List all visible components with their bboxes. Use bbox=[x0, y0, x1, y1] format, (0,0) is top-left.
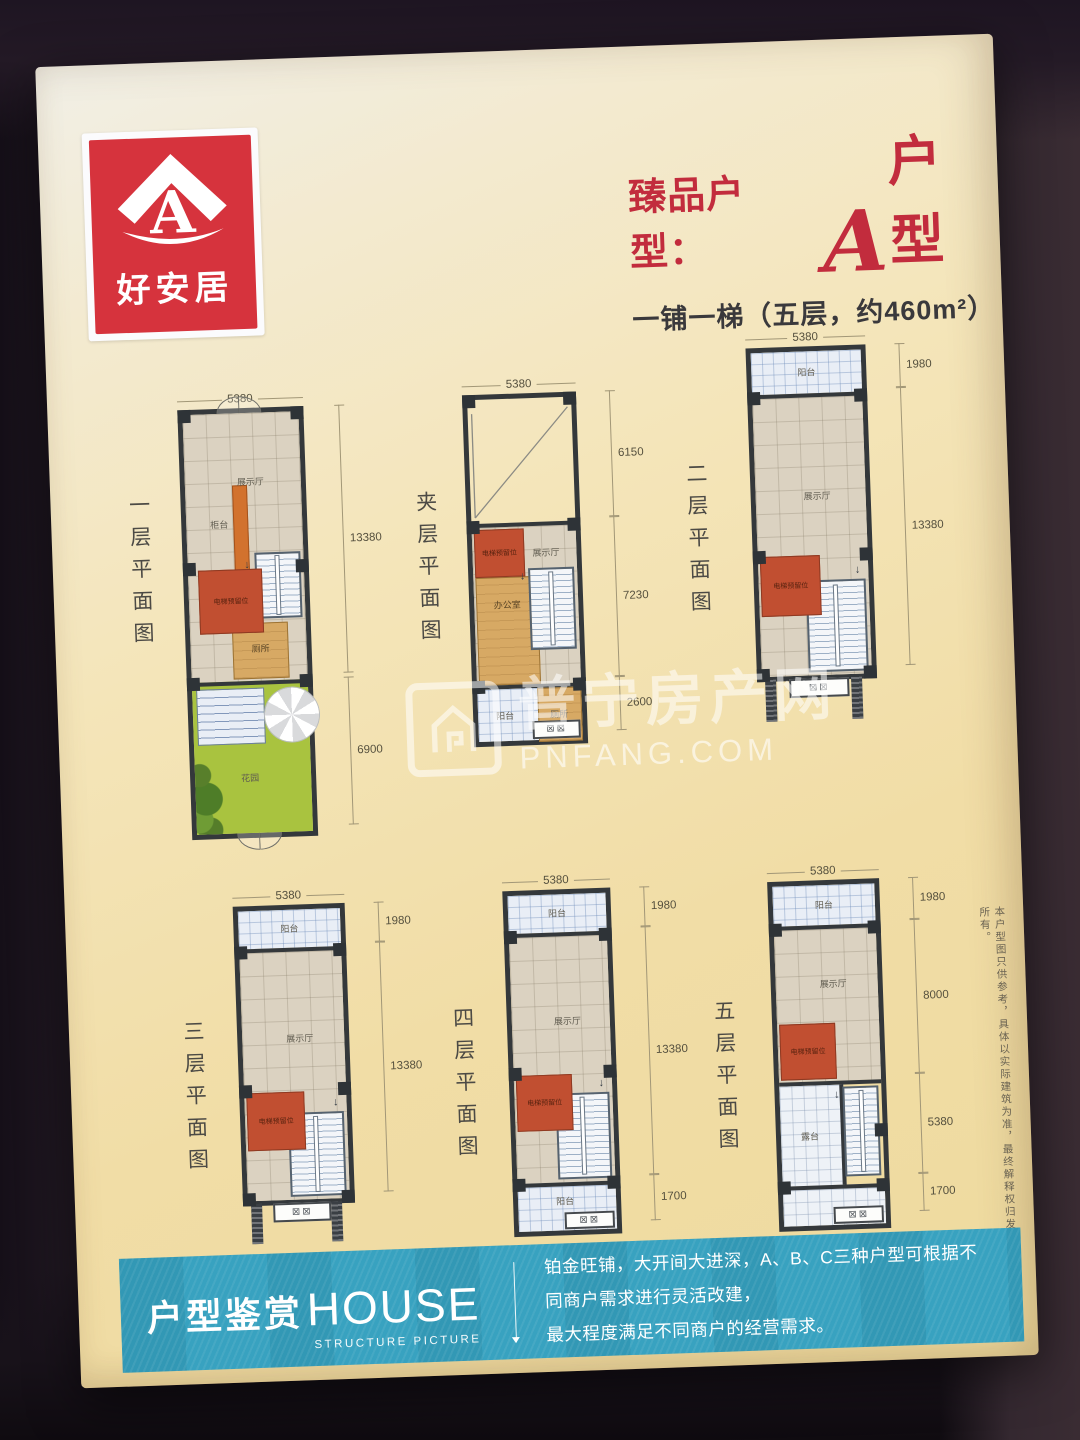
room-label-elevator: 电梯预留位 bbox=[213, 596, 248, 607]
dimension-value: 5380 bbox=[792, 331, 818, 344]
room-label-balcony: 阳台 bbox=[548, 906, 566, 920]
room-label-hall: 展示厅 bbox=[554, 1014, 581, 1028]
dimension-value: 13380 bbox=[656, 1043, 688, 1056]
floor-plan-level-3: 三层平面图 5380 阳台 展示厅 电梯预留位 ↓ ⊠⊠ 1980 13380 bbox=[232, 885, 355, 1207]
window-icon: ⊠⊠ bbox=[273, 1201, 332, 1222]
page-header: 臻品户型： A 户型 一铺一梯（五层，约460m²） bbox=[626, 114, 1003, 338]
svg-text:A: A bbox=[148, 177, 197, 248]
brand-name: 好安居 bbox=[116, 259, 235, 312]
hall-section: 展示厅 电梯预留位 bbox=[774, 923, 881, 1082]
floor-plan-level-2: 二层平面图 5380 阳台 展示厅 电梯预留位 ↓ ⊠⊠ 1980 13380 bbox=[745, 326, 877, 682]
title-letter: A bbox=[822, 204, 890, 278]
dimension-value: 1700 bbox=[661, 1190, 687, 1203]
dimension-side: 1700 bbox=[922, 1173, 924, 1211]
dimension-value: 5380 bbox=[927, 1116, 953, 1129]
plan-body: 阳台 展示厅 电梯预留位 ↓ bbox=[233, 903, 355, 1207]
dimension-value: 7230 bbox=[623, 589, 649, 602]
house-a-logo-icon: A bbox=[106, 149, 238, 257]
dimension-side: 2600 bbox=[619, 676, 622, 730]
dimension-side: 5380 bbox=[919, 1073, 923, 1173]
brochure-page: A 好安居 臻品户型： A 户型 一铺一梯（五层，约460m²） 一层平面图 5… bbox=[35, 34, 1039, 1389]
window-icon: ⊠⊠ bbox=[565, 1211, 616, 1230]
stair-arrow-icon: ↓ bbox=[244, 559, 250, 571]
room-label-toilet: 厕所 bbox=[550, 707, 568, 721]
dimension-side: 13380 bbox=[379, 942, 389, 1192]
terrace-section: 露台 ↓ bbox=[779, 1079, 885, 1186]
title-suffix: 户型 bbox=[886, 114, 1001, 276]
stair-arrow-icon: ↓ bbox=[333, 1096, 339, 1108]
room-label-elevator: 电梯预留位 bbox=[527, 1097, 562, 1108]
dimension-value: 2600 bbox=[627, 696, 653, 709]
umbrella-icon bbox=[264, 687, 320, 743]
column-leg bbox=[765, 680, 777, 722]
room-label-garden: 花园 bbox=[241, 771, 259, 785]
plan-title: 一层平面图 bbox=[122, 493, 158, 654]
room-label-elevator: 电梯预留位 bbox=[773, 580, 808, 591]
title-prefix: 臻品户型： bbox=[627, 160, 822, 285]
disclaimer-vertical-text: 本户型图只供参考，具体以实际建筑为准，最终解释权归发展商所有。 bbox=[977, 906, 1019, 1263]
elevator-reserved-block: 电梯预留位 bbox=[516, 1074, 574, 1132]
room-label-elevator: 电梯预留位 bbox=[482, 548, 517, 559]
banner-title-zh: 户型鉴赏 bbox=[146, 1285, 304, 1342]
hall-section: 展示厅 电梯预留位 ↓ bbox=[239, 946, 350, 1201]
void-section bbox=[467, 397, 575, 525]
door-swing-icon bbox=[216, 395, 262, 414]
dimension-side: 8000 bbox=[913, 919, 919, 1073]
dimension-value: 1980 bbox=[906, 358, 932, 371]
dimension-value: 5380 bbox=[506, 378, 532, 391]
plan-body: 阳台 展示厅 电梯预留位 露台 ↓ ⊠⊠ bbox=[767, 878, 891, 1232]
brand-logo-red-card: A 好安居 bbox=[89, 135, 258, 335]
banner-title: 户型鉴赏 HOUSE STRUCTURE PICTURE bbox=[146, 1276, 481, 1342]
banner-title-sub: STRUCTURE PICTURE bbox=[314, 1333, 481, 1351]
dimension-value: 6150 bbox=[618, 446, 644, 459]
plan-body: 阳台 展示厅 电梯预留位 ↓ bbox=[745, 344, 877, 682]
balcony-section: 阳台 bbox=[772, 883, 875, 927]
dimension-side: 1980 bbox=[643, 886, 645, 926]
room-label-counter: 柜台 bbox=[210, 518, 228, 532]
stair-arrow-icon: ↓ bbox=[520, 570, 526, 582]
plan-title: 四层平面图 bbox=[446, 1006, 482, 1167]
deck-block bbox=[196, 688, 266, 746]
column-leg bbox=[251, 1204, 263, 1244]
banner-description: 铂金旺铺，大开间大进深，A、B、C三种户型可根据不同商户需求进行灵活改建， 最大… bbox=[543, 1234, 998, 1352]
plan-body: 阳台 展示厅 电梯预留位 ↓ 阳台 ⊠⊠ bbox=[502, 888, 622, 1238]
column-leg bbox=[331, 1201, 343, 1241]
room-label-hall: 展示厅 bbox=[532, 545, 559, 559]
balcony-section: 阳台 bbox=[507, 893, 606, 934]
floor-plan-level-1: 一层平面图 5380 展示厅 柜台 电梯预留位 ↓ 厕所 花园 bbox=[177, 388, 319, 840]
bottom-banner: 户型鉴赏 HOUSE STRUCTURE PICTURE 铂金旺铺，大开间大进深… bbox=[119, 1227, 1024, 1372]
floor-plan-mezzanine: 夹层平面图 5380 电梯预留位 展示厅 办公室 ↓ 阳台 bbox=[461, 373, 588, 747]
page-title: 臻品户型： A 户型 bbox=[626, 114, 1001, 285]
dimension-value: 5380 bbox=[810, 865, 836, 878]
window-icon: ⊠⊠ bbox=[833, 1205, 884, 1224]
dimension-value: 1980 bbox=[385, 915, 411, 928]
dimension-side: 13380 bbox=[645, 926, 655, 1174]
dimension-side: 1980 bbox=[378, 902, 380, 942]
dimension-side: 6150 bbox=[609, 390, 614, 516]
room-label-balcony-bottom: 阳台 bbox=[556, 1194, 574, 1208]
balcony-bottom-section: 阳台 ⊠⊠ bbox=[517, 1181, 617, 1232]
elevator-reserved-block: 电梯预留位 bbox=[779, 1023, 837, 1081]
dimension-side: 1980 bbox=[898, 343, 901, 387]
dimension-value: 1700 bbox=[930, 1185, 956, 1198]
dimension-value: 1980 bbox=[920, 891, 946, 904]
room-label-elevator: 电梯预留位 bbox=[790, 1046, 825, 1057]
plan-body: 电梯预留位 展示厅 办公室 ↓ 阳台 厕所 ⊠⊠ bbox=[462, 391, 588, 747]
room-label-balcony: 阳台 bbox=[815, 898, 833, 912]
floor-plan-level-5: 五层平面图 5380 阳台 展示厅 电梯预留位 露台 ↓ ⊠⊠ 1 bbox=[766, 860, 891, 1232]
room-label-balcony: 阳台 bbox=[496, 709, 514, 723]
dimension-value: 13380 bbox=[912, 519, 944, 532]
door-swing-icon bbox=[237, 832, 283, 851]
dimension-side: 13380 bbox=[900, 387, 911, 665]
banner-divider bbox=[513, 1262, 517, 1342]
dimension-value: 6900 bbox=[357, 743, 383, 756]
dimension-value: 1980 bbox=[651, 899, 677, 912]
dimension-value: 5380 bbox=[275, 889, 301, 902]
dimension-side: 1980 bbox=[912, 877, 914, 919]
balcony-section: 阳台 bbox=[751, 349, 862, 395]
window-icon: ⊠⊠ bbox=[789, 677, 850, 698]
plan-title: 五层平面图 bbox=[707, 999, 743, 1160]
room-label-hall: 展示厅 bbox=[819, 976, 846, 990]
dimension-side: 7230 bbox=[613, 516, 620, 676]
stair-arrow-icon: ↓ bbox=[598, 1077, 604, 1089]
plan-title: 夹层平面图 bbox=[409, 490, 445, 651]
hall-section: 展示厅 电梯预留位 ↓ bbox=[752, 391, 872, 677]
dimension-side: 13380 bbox=[338, 405, 348, 673]
elevator-reserved-block: 电梯预留位 bbox=[474, 528, 526, 578]
column-leg bbox=[851, 677, 863, 719]
dimension-value: 8000 bbox=[923, 989, 949, 1002]
bottom-section: ⊠⊠ bbox=[783, 1183, 886, 1227]
room-label-hall: 展示厅 bbox=[237, 474, 264, 488]
mezzanine-section: 电梯预留位 展示厅 办公室 ↓ bbox=[471, 521, 581, 687]
window-icon: ⊠⊠ bbox=[532, 719, 581, 739]
room-label-terrace: 露台 bbox=[801, 1129, 819, 1143]
balcony-section: 阳台 bbox=[238, 908, 341, 950]
hall-section: 展示厅 柜台 电梯预留位 ↓ 厕所 bbox=[182, 411, 307, 683]
banner-title-en: HOUSE bbox=[306, 1276, 481, 1336]
dimension-value: 13380 bbox=[390, 1059, 422, 1072]
room-label-balcony: 阳台 bbox=[797, 365, 815, 379]
brand-logo: A 好安居 bbox=[82, 127, 265, 341]
balcony-toilet-section: 阳台 厕所 ⊠⊠ bbox=[477, 682, 583, 742]
room-label-balcony: 阳台 bbox=[280, 921, 298, 935]
plan-title: 三层平面图 bbox=[177, 1020, 213, 1181]
elevator-reserved-block: 电梯预留位 bbox=[246, 1091, 306, 1151]
stair-arrow-icon: ↓ bbox=[855, 564, 861, 576]
stairs bbox=[528, 567, 577, 651]
room-label-hall: 展示厅 bbox=[286, 1031, 313, 1045]
void-diagonal-line bbox=[467, 397, 575, 525]
dimension-side: 1700 bbox=[653, 1174, 656, 1220]
garden-section: 花园 bbox=[192, 679, 313, 835]
elevator-reserved-block: 电梯预留位 bbox=[760, 555, 822, 617]
elevator-reserved-block: 电梯预留位 bbox=[198, 569, 264, 635]
dimension-value: 5380 bbox=[543, 874, 569, 887]
room-label-elevator: 电梯预留位 bbox=[258, 1116, 293, 1127]
plan-body: 展示厅 柜台 电梯预留位 ↓ 厕所 花园 bbox=[177, 406, 318, 840]
plan-title: 二层平面图 bbox=[679, 462, 715, 623]
stair-arrow-icon: ↓ bbox=[834, 1089, 840, 1101]
dimension-value: 13380 bbox=[350, 531, 382, 544]
room-label-hall: 展示厅 bbox=[803, 489, 830, 503]
dimension-side: 6900 bbox=[348, 677, 354, 825]
floor-plan-level-4: 四层平面图 5380 阳台 展示厅 电梯预留位 ↓ 阳台 ⊠⊠ 1980 133… bbox=[502, 870, 623, 1238]
hall-section: 展示厅 电梯预留位 ↓ bbox=[509, 931, 616, 1184]
